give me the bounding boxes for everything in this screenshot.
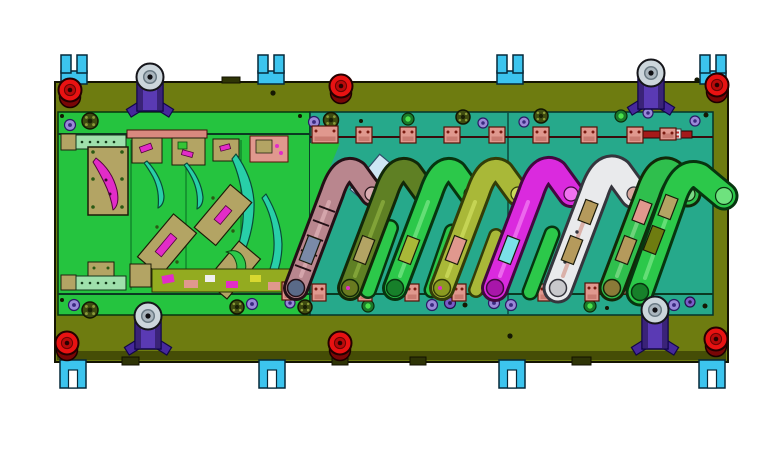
clamp-block-top-1[interactable] <box>312 126 338 143</box>
base-bottom-shadow <box>57 351 726 360</box>
red-bolt[interactable] <box>329 332 352 361</box>
clamp-block-top-5[interactable] <box>489 127 505 143</box>
punch-block-2-green <box>178 142 187 149</box>
clamp-slot[interactable] <box>699 360 725 388</box>
clamp-slot[interactable] <box>60 360 86 388</box>
scrap-bit-5 <box>250 275 261 282</box>
scrap-bit-3 <box>205 275 215 282</box>
clamp-block-top-7[interactable] <box>581 127 597 143</box>
clamp-block-top-6[interactable] <box>533 127 549 143</box>
clamp-block-top-8[interactable] <box>627 127 643 143</box>
die-top-view <box>0 0 765 461</box>
clamp-block-top-4[interactable] <box>444 127 460 143</box>
rail-tab-bottom-3 <box>410 357 426 365</box>
cad-viewport <box>0 0 765 461</box>
clamp-block-top-9[interactable] <box>660 128 676 140</box>
red-bolt[interactable] <box>56 332 79 361</box>
guide-block-top-left[interactable] <box>61 134 76 150</box>
lifter-bar-bottom[interactable] <box>76 276 126 290</box>
clamp-slots-bottom[interactable] <box>60 360 725 388</box>
feed-bar-salmon <box>127 130 207 138</box>
punch-block-4-insert <box>256 140 272 153</box>
scrap-bit-4 <box>226 281 238 288</box>
clamp-slot[interactable] <box>258 55 284 84</box>
clamp-slot[interactable] <box>497 55 523 84</box>
red-bolt[interactable] <box>59 79 82 108</box>
scrap-bit-6 <box>268 282 280 290</box>
rail-tab-bottom-1 <box>122 357 139 365</box>
rail-tab-top <box>222 77 240 83</box>
clamp-block-top-3[interactable] <box>400 127 416 143</box>
guide-block-bottom-left[interactable] <box>61 275 76 290</box>
red-bolt[interactable] <box>330 75 353 104</box>
clamp-block-bottom-2[interactable] <box>312 284 326 301</box>
rail-tab-bottom-4 <box>572 357 591 365</box>
red-bolt[interactable] <box>705 328 728 357</box>
clamp-block-bottom-7[interactable] <box>585 283 599 301</box>
clamp-slot[interactable] <box>259 360 285 388</box>
clamp-block-top-2[interactable] <box>356 127 372 143</box>
scrap-bit-2 <box>184 280 198 288</box>
red-bolt[interactable] <box>706 74 729 103</box>
clamp-slot[interactable] <box>499 360 525 388</box>
die-block-bottom-2[interactable] <box>130 264 151 287</box>
